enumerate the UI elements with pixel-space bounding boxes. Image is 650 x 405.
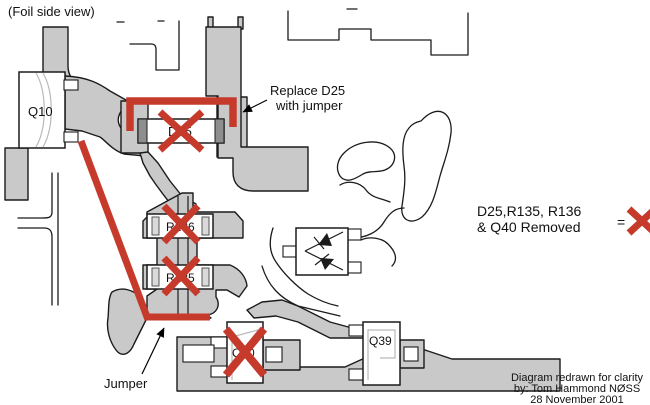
d25-cap-right bbox=[215, 119, 224, 143]
outline-bottomleft-trace-c bbox=[18, 228, 52, 305]
diode-pack-tab-right-bottom bbox=[347, 262, 361, 273]
r136-end-left bbox=[152, 217, 159, 235]
outline-right-lower-curve bbox=[361, 238, 395, 266]
r135-end-right bbox=[202, 268, 209, 286]
q39-right-pad-notch bbox=[404, 347, 418, 361]
page-title: (Foil side view) bbox=[8, 4, 95, 19]
outline-top-left-u bbox=[130, 21, 179, 70]
q40-right-pad-notch bbox=[266, 347, 282, 362]
pcb-foil-diagram: Q10 D25 R136 R135 bbox=[0, 0, 650, 405]
outline-right-hook-blob bbox=[402, 111, 451, 221]
r136-end-right bbox=[202, 217, 209, 235]
outline-right-tail-curve bbox=[340, 182, 390, 202]
q10-pad-bottom bbox=[64, 132, 78, 142]
arrow-icon-jumper bbox=[142, 328, 164, 374]
legend-line2: & Q40 Removed bbox=[477, 219, 581, 235]
replace-annotation-line1: Replace D25 bbox=[270, 83, 345, 98]
legend-equals: = bbox=[617, 214, 625, 230]
r135-end-left bbox=[152, 268, 159, 286]
diode-pack-tab-left bbox=[283, 246, 296, 257]
diode-pack-tab-right-top bbox=[347, 229, 361, 240]
q39-label: Q39 bbox=[369, 334, 392, 348]
removed-x-icon-legend bbox=[629, 209, 650, 233]
strip-notch bbox=[183, 345, 214, 362]
outline-right-left-lobe bbox=[337, 142, 394, 180]
outline-top-middle-steps bbox=[288, 11, 468, 55]
q10-pad-top bbox=[64, 80, 78, 90]
credit-line3: 28 November 2001 bbox=[530, 394, 624, 405]
component-diode-pack bbox=[283, 228, 361, 275]
foil-left-bar bbox=[5, 148, 28, 200]
d25-cap-left bbox=[138, 119, 147, 143]
jumper-annotation: Jumper bbox=[104, 376, 148, 391]
replace-annotation-line2: with jumper bbox=[275, 98, 343, 113]
q10-label: Q10 bbox=[28, 104, 53, 119]
diagram-canvas: Q10 D25 R136 R135 bbox=[0, 0, 650, 405]
legend-line1: D25,R135, R136 bbox=[477, 203, 582, 219]
